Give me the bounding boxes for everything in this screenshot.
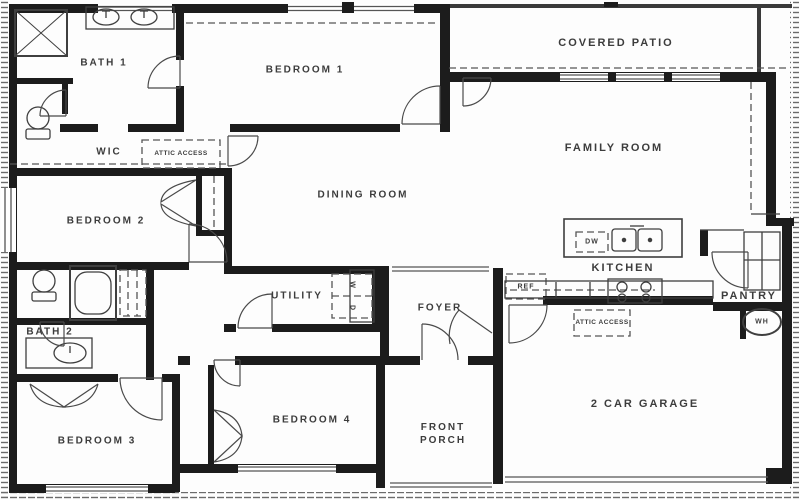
window — [354, 4, 414, 13]
room-label-foyer: FOYER — [418, 303, 462, 314]
room-label-covered-patio: COVERED PATIO — [558, 37, 673, 49]
room-label-kitchen: KITCHEN — [592, 262, 655, 274]
room-label-bedroom-4: BEDROOM 4 — [273, 415, 352, 426]
floor-plan: COVERED PATIO BATH 1 BEDROOM 1 FAMILY RO… — [0, 0, 800, 500]
door-swing — [120, 378, 162, 420]
window — [672, 73, 720, 81]
door-swing — [449, 310, 492, 344]
window — [238, 465, 336, 473]
room-label-bedroom-2: BEDROOM 2 — [67, 216, 146, 227]
dishwasher-label: DW — [585, 239, 599, 246]
linen-shelves — [120, 270, 146, 316]
door-swing — [422, 324, 458, 360]
door-swing — [189, 224, 227, 262]
door-swing — [712, 252, 748, 288]
room-label-utility: UTILITY — [271, 291, 323, 302]
door-swing — [228, 136, 258, 166]
room-label-bedroom-1: BEDROOM 1 — [266, 65, 345, 76]
toilet — [26, 107, 50, 139]
room-label-front-porch: FRONT PORCH — [402, 421, 484, 447]
toilet — [32, 270, 56, 301]
dryer-label: D — [349, 305, 356, 311]
room-label-pantry: PANTRY — [721, 290, 777, 302]
foyer-cased-opening — [392, 267, 489, 271]
window — [46, 485, 148, 493]
shower — [15, 10, 67, 56]
door-swing — [402, 86, 440, 124]
room-label-bedroom-3: BEDROOM 3 — [58, 436, 137, 447]
door-swing — [463, 78, 491, 106]
closet-doors — [214, 410, 242, 462]
window — [616, 73, 664, 81]
window — [560, 73, 608, 81]
bathtub — [70, 266, 116, 320]
refrigerator-label: REF — [518, 284, 535, 291]
room-label-family-room: FAMILY ROOM — [565, 142, 663, 154]
garage-door-opening — [505, 477, 768, 482]
window — [1, 188, 16, 252]
room-label-garage: 2 CAR GARAGE — [591, 398, 699, 410]
washer-label: W — [349, 281, 356, 289]
closet-doors — [30, 384, 98, 407]
room-label-bath-1: BATH 1 — [80, 58, 127, 69]
door-swing — [148, 56, 180, 88]
kitchen-sink — [612, 226, 662, 251]
floorplan-drawing — [0, 0, 800, 500]
attic-access-label: ATTIC ACCESS — [573, 319, 631, 327]
door-swing — [509, 305, 547, 343]
window — [288, 4, 342, 13]
fixtures — [15, 7, 781, 368]
room-label-wic: WIC — [96, 147, 121, 158]
dashed-lines — [10, 23, 788, 336]
room-label-bath-2: BATH 2 — [26, 327, 73, 338]
attic-access-label: ATTIC ACCESS — [152, 150, 210, 158]
vanity-sink — [26, 338, 92, 368]
door-swing — [238, 294, 272, 328]
closet-doors — [161, 180, 196, 226]
porch-edge — [390, 483, 492, 487]
room-label-dining-room: DINING ROOM — [318, 190, 409, 201]
water-heater-label: WH — [755, 319, 769, 326]
